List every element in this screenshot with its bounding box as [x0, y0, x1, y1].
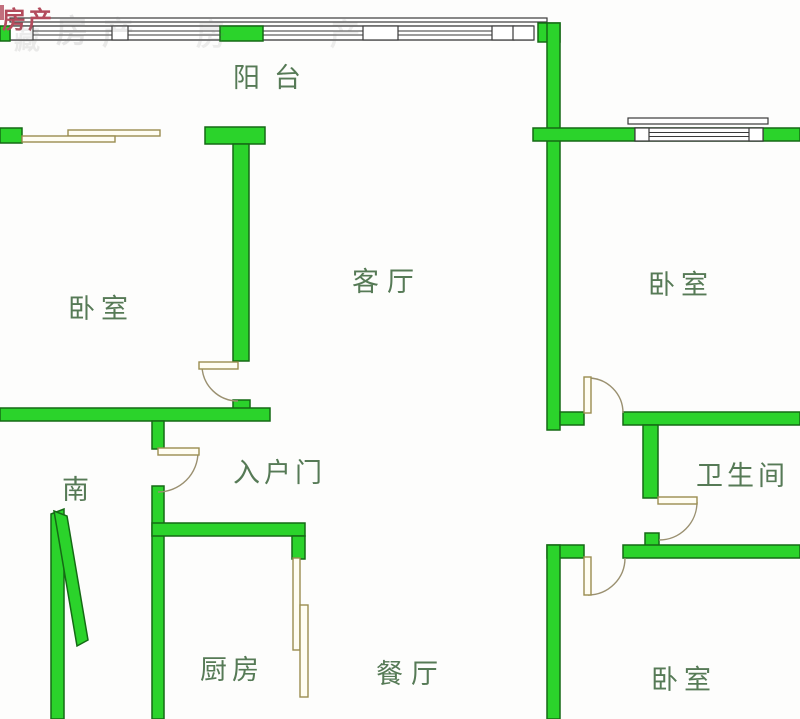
- balcony-window-mullion: [513, 26, 534, 40]
- watermark-ghost-char: 产: [102, 8, 134, 54]
- wall-hall-north-west-piece: [560, 412, 584, 425]
- bedroom-right-door-arc: [588, 378, 623, 413]
- balcony-sliding-door-panel: [68, 130, 160, 136]
- bathroom-door-leaf: [658, 497, 697, 504]
- wall-corridor-kitchen-west: [152, 486, 164, 719]
- bedroom-right-window-sill: [628, 118, 768, 124]
- wall-hall-north-east-piece: [623, 412, 800, 425]
- wall-bathroom-west-upper: [643, 425, 658, 498]
- room-label-entrance-door: 入户门: [233, 459, 326, 489]
- balcony-window-mullion: [363, 26, 398, 40]
- floor-plan: 阳台 卧室 客厅 卧室 南 入户门 卫生间 厨房 餐厅 卧室 房产 房 产 藏 …: [0, 0, 800, 719]
- wall-living-east: [547, 23, 560, 430]
- kitchen-sliding-door-panel: [293, 558, 300, 650]
- room-label-balcony: 阳台: [233, 64, 315, 94]
- wall-tee-cap: [205, 127, 265, 144]
- room-label-dining-room: 餐厅: [376, 660, 446, 690]
- room-label-kitchen: 厨房: [200, 656, 264, 686]
- room-label-bedroom-right: 卧室: [648, 271, 714, 301]
- watermark-ghost-char: 产: [330, 10, 360, 54]
- watermark-ghost-char: 房: [196, 10, 226, 54]
- watermark-ghost-char: 藏: [14, 20, 40, 57]
- entrance-door-leaf: [158, 448, 199, 455]
- wall-kitchen-north: [152, 523, 305, 536]
- wall-bedroom-left-south: [0, 408, 270, 421]
- floor-plan-drawing: [0, 0, 800, 719]
- wall-window-pillar-mid: [220, 26, 263, 41]
- room-label-living-room: 客厅: [352, 268, 422, 298]
- bedroom-left-door-leaf: [199, 362, 238, 369]
- balcony-window-mullion: [492, 26, 514, 40]
- wall-bedroom-left-east: [233, 144, 249, 361]
- room-label-bedroom-bottom: 卧室: [651, 666, 717, 696]
- wall-bathroom-west-lower: [645, 533, 659, 546]
- bedroom-bottom-door-arc: [588, 558, 625, 595]
- watermark-ghost-char: 房: [56, 6, 88, 52]
- bathroom-door-arc: [659, 502, 697, 540]
- balcony-window-band: [10, 26, 533, 40]
- bedroom-left-door-arc: [202, 366, 238, 401]
- wall-south-east-piece: [623, 545, 800, 558]
- wall-corridor-west-upper: [152, 421, 164, 449]
- compass-label-south: 南: [62, 476, 89, 506]
- bedroom-right-door-leaf: [584, 377, 591, 413]
- balcony-window-sill: [10, 18, 547, 22]
- room-label-bathroom: 卫生间: [696, 462, 789, 492]
- wall-kitchen-door-jamb: [292, 536, 305, 559]
- kitchen-sliding-door-panel: [300, 605, 308, 697]
- wall-balcony-bedroom-stub: [0, 128, 22, 143]
- wall-bedroom-bottom-west: [547, 545, 560, 719]
- bedroom-right-window-endcap: [635, 128, 649, 141]
- bedroom-bottom-door-leaf: [584, 557, 591, 595]
- bedroom-right-window: [635, 128, 763, 141]
- bedroom-right-window-endcap: [749, 128, 763, 141]
- balcony-sliding-door-panel: [22, 136, 115, 142]
- room-label-bedroom-left: 卧室: [68, 295, 134, 325]
